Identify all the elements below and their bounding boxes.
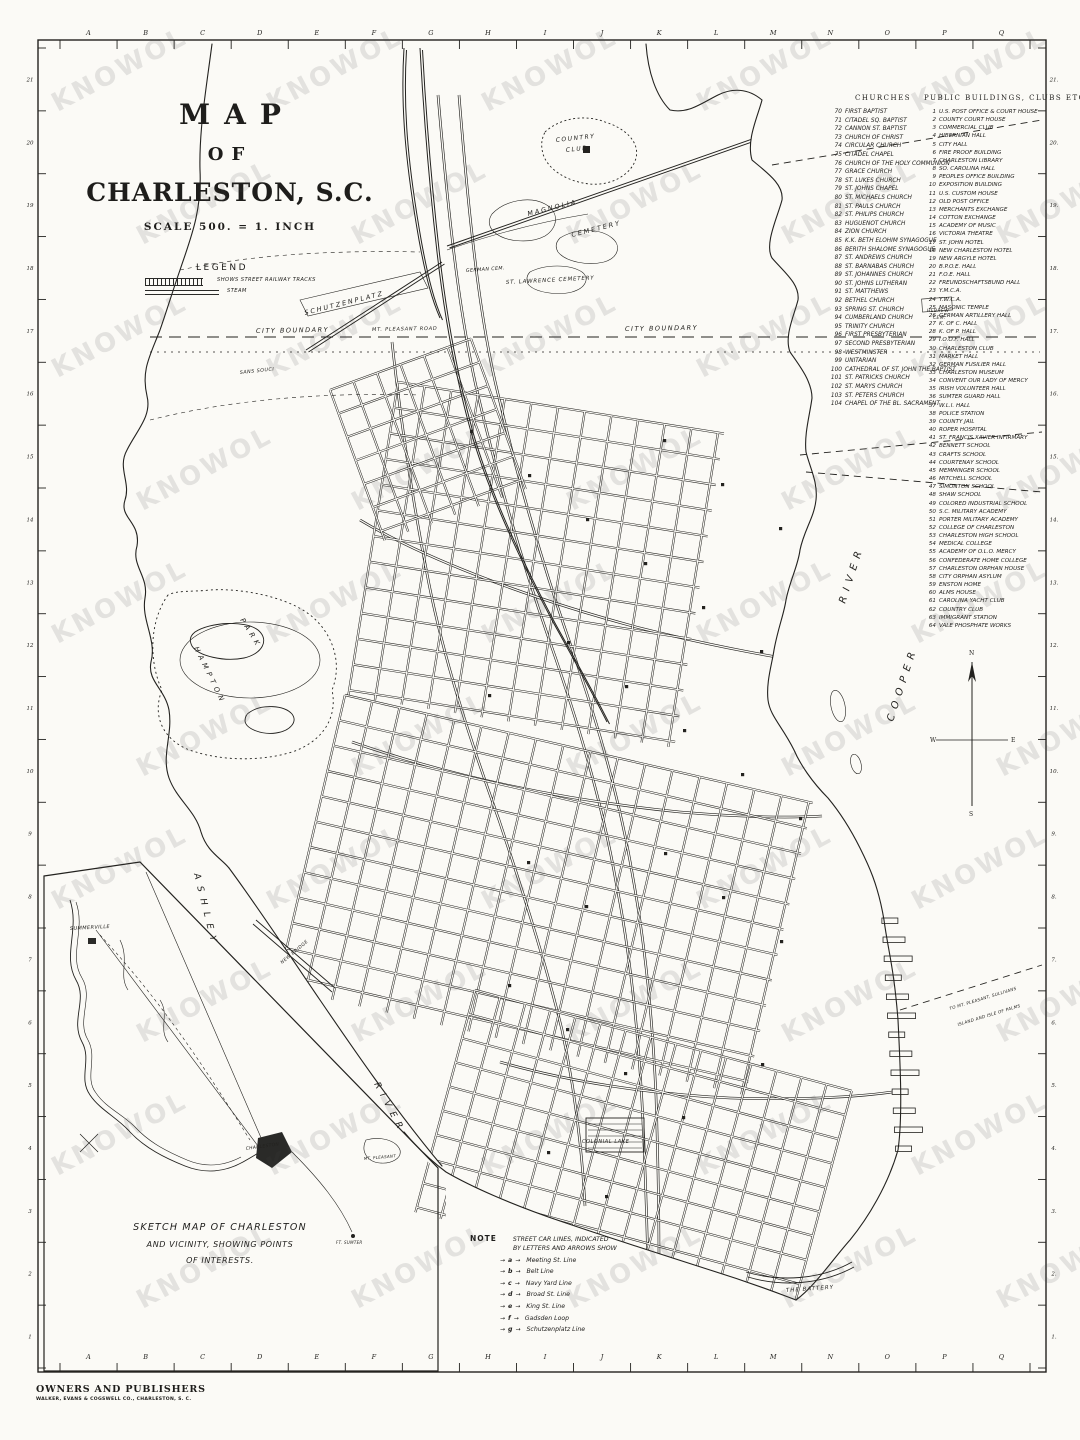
- list-item: 15ACADEMY OF MUSIC: [924, 222, 1048, 230]
- list-item: 44COURTENAY SCHOOL: [924, 459, 1048, 467]
- arrow-icon: →: [500, 1291, 505, 1298]
- list-item: 45MEMMINGER SCHOOL: [924, 467, 1048, 475]
- list-item: 56CONFEDERATE HOME COLLEGE: [924, 557, 1048, 565]
- grid-number: 5: [28, 1083, 32, 1089]
- list-item: 64VALE PHOSPHATE WORKS: [924, 622, 1048, 630]
- list-item: 88ST. BARNABAS CHURCH: [830, 263, 936, 272]
- grid-number: 3.: [1051, 1209, 1056, 1215]
- list-item: 76CHURCH OF THE HOLY COMMUNION: [830, 160, 936, 169]
- list-item: 34CONVENT OUR LADY OF MERCY: [924, 377, 1048, 385]
- list-item: 18NEW CHARLESTON HOTEL: [924, 247, 1048, 255]
- list-item: 11U.S. CUSTOM HOUSE: [924, 190, 1048, 198]
- inset-caption-line-2: AND VICINITY, SHOWING POINTS: [88, 1240, 352, 1249]
- list-item: 9PEOPLES OFFICE BUILDING: [924, 173, 1048, 181]
- list-item: 26GERMAN ARTILLERY HALL: [924, 312, 1048, 320]
- railroad-west: [403, 48, 440, 318]
- compass-w-label: W: [930, 737, 937, 744]
- arrow-icon: →: [515, 1257, 520, 1264]
- inset-summerville-mark: [88, 938, 96, 944]
- list-item: 89ST. JOHANNES CHURCH: [830, 271, 936, 280]
- note-intro-1: STREET CAR LINES, INDICATED: [513, 1236, 609, 1243]
- arrow-icon: →: [500, 1257, 505, 1264]
- label-magnolia-cemetery-1: MAGNOLIA: [527, 198, 578, 218]
- list-item: 30CHARLESTON CLUB: [924, 345, 1048, 353]
- list-item: 43CRAFTS SCHOOL: [924, 451, 1048, 459]
- list-item: 22FREUNDSCHAFTSBUND HALL: [924, 279, 1048, 287]
- note-heading: NOTE: [470, 1234, 497, 1243]
- list-item: 2COUNTY COURT HOUSE: [924, 116, 1048, 124]
- grid-number: 10.: [1050, 769, 1059, 775]
- grid-number: 12.: [1050, 643, 1059, 649]
- arrow-icon: →: [514, 1315, 519, 1322]
- public-buildings-list: PUBLIC BUILDINGS, CLUBS ETC. 1U.S. POST …: [924, 94, 1048, 630]
- street-car-line-item: →d→Broad St. Line: [500, 1291, 617, 1298]
- grid-letter: B: [142, 1353, 148, 1361]
- building-block: [488, 694, 491, 697]
- list-item: 85K.K. BETH ELOHIM SYNAGOGUE: [830, 237, 936, 246]
- list-item: 4HIBERNIAN HALL: [924, 132, 1048, 140]
- grid-letter: I: [543, 29, 547, 37]
- building-block: [761, 1063, 764, 1066]
- public-buildings-header: PUBLIC BUILDINGS, CLUBS ETC.: [924, 94, 1048, 102]
- street-car-line-item: →g→Schutzenplatz Line: [500, 1326, 617, 1333]
- grid-letter: J: [599, 29, 604, 37]
- list-item: 51PORTER MILITARY ACADEMY: [924, 516, 1048, 524]
- grid-letter: H: [484, 29, 491, 37]
- map-title-line-3: CHARLESTON, S.C.: [85, 178, 375, 207]
- hampton-park-outline: [153, 590, 337, 759]
- list-item: 38POLICE STATION: [924, 410, 1048, 418]
- building-block: [799, 817, 802, 820]
- list-item: 95TRINITY CHURCH: [830, 323, 936, 332]
- list-item: 71CITADEL SQ. BAPTIST: [830, 117, 936, 126]
- grid-letter: H: [484, 1353, 491, 1361]
- grid-letter: L: [713, 29, 718, 37]
- inset-compass-cross: [80, 1134, 98, 1152]
- list-item: 57CHARLESTON ORPHAN HOUSE: [924, 565, 1048, 573]
- list-item: 93SPRING ST. CHURCH: [830, 306, 936, 315]
- grid-letter: K: [656, 29, 663, 37]
- label-german-cem: GERMAN CEM.: [466, 265, 505, 274]
- arrow-icon: →: [515, 1291, 520, 1298]
- building-block: [566, 1028, 569, 1031]
- building-block: [644, 562, 647, 565]
- grid-number: 6: [28, 1020, 32, 1026]
- grid-letter: F: [371, 29, 377, 37]
- building-block: [760, 650, 763, 653]
- street-car-line-item: →c→Navy Yard Line: [500, 1280, 617, 1287]
- road-to-cemetery: [447, 214, 588, 250]
- building-block: [663, 439, 666, 442]
- grid-letter: G: [428, 1353, 433, 1361]
- list-item: 96FIRST PRESBYTERIAN: [830, 331, 936, 340]
- list-item: 58CITY ORPHAN ASYLUM: [924, 573, 1048, 581]
- legend-heading: LEGEND: [196, 263, 248, 273]
- list-item: 81ST. PAULS CHURCH: [830, 203, 936, 212]
- list-item: 41ST. FRANCIS XAVIER INFIRMARY: [924, 434, 1048, 442]
- grid-letter: C: [200, 29, 205, 37]
- building-block: [528, 474, 531, 477]
- list-item: 13MERCHANTS EXCHANGE: [924, 206, 1048, 214]
- inset-caption: SKETCH MAP OF CHARLESTON AND VICINITY, S…: [88, 1222, 352, 1265]
- grid-number: 13.: [1050, 580, 1059, 586]
- list-item: 61CAROLINA YACHT CLUB: [924, 597, 1048, 605]
- arrow-icon: →: [515, 1303, 520, 1310]
- list-item: 28K. OF P. HALL: [924, 328, 1048, 336]
- list-item: 91ST. MATTHEWS: [830, 288, 936, 297]
- list-item: 70FIRST BAPTIST: [830, 108, 936, 117]
- grid-number: 10: [27, 769, 34, 775]
- list-item: 33CHARLESTON MUSEUM: [924, 369, 1048, 377]
- list-item: 40ROPER HOSPITAL: [924, 426, 1048, 434]
- grid-letter: F: [371, 1353, 377, 1361]
- inset-caption-line-1: SKETCH MAP OF CHARLESTON: [88, 1222, 352, 1233]
- building-block: [585, 905, 588, 908]
- map-page: AABBCCDDEEFFGGHHIIJJKKLLMMNNOOPPQQ2121.2…: [0, 0, 1080, 1440]
- list-item: 77GRACE CHURCH: [830, 168, 936, 177]
- list-item: 23Y.M.C.A.: [924, 287, 1048, 295]
- list-item: 50S.C. MILITARY ACADEMY: [924, 508, 1048, 516]
- list-item: 98WESTMINSTER: [830, 349, 936, 358]
- grid-number: 21.: [1049, 77, 1059, 83]
- label-mt-pleasant-inset: MT. PLEASANT: [364, 1153, 397, 1161]
- grid-number: 7: [28, 957, 32, 963]
- publisher-line-2: WALKER, EVANS & COGSWELL CO., CHARLESTON…: [36, 1397, 206, 1402]
- list-item: 21F.O.E. HALL: [924, 271, 1048, 279]
- publisher-line-1: OWNERS AND PUBLISHERS: [36, 1384, 206, 1395]
- list-item: 87ST. ANDREWS CHURCH: [830, 254, 936, 263]
- list-item: 7CHARLESTON LIBRARY: [924, 157, 1048, 165]
- grid-letter: B: [142, 29, 148, 37]
- building-block: [508, 984, 511, 987]
- list-item: 100CATHEDRAL OF ST. JOHN THE BAPTIST: [830, 366, 936, 375]
- grid-letter: L: [713, 1353, 718, 1361]
- grid-number: 2: [27, 1272, 32, 1278]
- inset-charleston-blob: [256, 1132, 292, 1168]
- grid-letter: E: [313, 29, 319, 37]
- railroad-northeast-2: [450, 132, 781, 248]
- magnolia-cemetery-outline-2: [556, 231, 617, 264]
- list-item: 36SUMTER GUARD HALL: [924, 393, 1048, 401]
- churches-items: 70FIRST BAPTIST71CITADEL SQ. BAPTIST72CA…: [830, 108, 936, 409]
- grid-letter: M: [769, 29, 777, 37]
- street-car-line-item: →f→Gadsden Loop: [500, 1315, 617, 1322]
- building-block: [547, 1151, 550, 1154]
- list-item: 5CITY HALL: [924, 141, 1048, 149]
- building-block: [702, 606, 705, 609]
- grid-number: 16.: [1050, 392, 1059, 398]
- list-item: 17ST. JOHN HOTEL: [924, 239, 1048, 247]
- list-item: 14COTTON EXCHANGE: [924, 214, 1048, 222]
- grid-number: 18.: [1050, 266, 1059, 272]
- grid-number: 12: [27, 643, 34, 649]
- grid-number: 8.: [1051, 895, 1056, 901]
- list-item: 75CITADEL CHAPEL: [830, 151, 936, 160]
- grid-letter: M: [769, 1353, 777, 1361]
- grid-number: 19.: [1050, 203, 1059, 209]
- grid-number: 9: [28, 832, 32, 838]
- grid-number: 14.: [1050, 517, 1059, 523]
- list-item: 24Y.W.C.A.: [924, 296, 1048, 304]
- list-item: 42BENNETT SCHOOL: [924, 442, 1048, 450]
- list-item: 25MASONIC TEMPLE: [924, 304, 1048, 312]
- street-grid: [330, 339, 526, 541]
- building-block: [586, 518, 589, 521]
- list-item: 3COMMERCIAL CLUB: [924, 124, 1048, 132]
- list-item: 29I.O.O.F. HALL: [924, 336, 1048, 344]
- list-item: 90ST. JOHNS LUTHERAN: [830, 280, 936, 289]
- grid-letter: G: [428, 29, 433, 37]
- grid-number: 19: [27, 203, 34, 209]
- grid-number: 14: [27, 517, 34, 523]
- list-item: 27K. OF C. HALL: [924, 320, 1048, 328]
- label-st-lawrence-cemetery: ST. LAWRENCE CEMETERY: [506, 275, 595, 286]
- grid-number: 17: [27, 329, 34, 335]
- grid-number: 5.: [1051, 1083, 1056, 1089]
- list-item: 31MARKET HALL: [924, 353, 1048, 361]
- list-item: 10EXPOSITION BUILDING: [924, 181, 1048, 189]
- grid-number: 15.: [1050, 455, 1059, 461]
- note-intro-2: BY LETTERS AND ARROWS SHOW: [513, 1245, 617, 1252]
- label-city-boundary-left: CITY BOUNDARY: [256, 326, 329, 335]
- building-block: [567, 641, 570, 644]
- list-item: 60ALMS HOUSE: [924, 589, 1048, 597]
- list-item: 59ENSTON HOME: [924, 581, 1048, 589]
- building-block: [470, 430, 473, 433]
- grid-number: 18: [27, 266, 34, 272]
- list-item: 63IMMIGRANT STATION: [924, 614, 1048, 622]
- arrow-icon: →: [515, 1280, 520, 1287]
- compass-e-label: E: [1011, 737, 1015, 744]
- arrow-icon: →: [515, 1326, 520, 1333]
- list-item: 86BERITH SHALOME SYNAGOGUE: [830, 246, 936, 255]
- legend-item-railway: SHOWS STREET RAILWAY TRACKS: [217, 277, 316, 283]
- inset-harbor-channel: [292, 1152, 352, 1232]
- label-colonial-lake: COLONIAL LAKE: [582, 1139, 630, 1145]
- grid-letter: P: [941, 29, 947, 37]
- grid-number: 20: [26, 140, 34, 146]
- grid-number: 4: [27, 1146, 32, 1152]
- compass-s-label: S: [969, 811, 973, 818]
- list-item: 35IRISH VOLUNTEER HALL: [924, 385, 1048, 393]
- grid-number: 2.: [1050, 1272, 1056, 1278]
- building-block: [721, 483, 724, 486]
- grid-letter: A: [85, 1353, 91, 1361]
- grid-letter: Q: [999, 1353, 1005, 1361]
- grid-letter: O: [885, 1353, 891, 1361]
- arrow-icon: →: [500, 1303, 505, 1310]
- label-sans-souci: SANS SOUCI: [240, 366, 275, 376]
- grid-letter: N: [826, 1353, 833, 1361]
- list-item: 55ACADEMY OF O.L.O. MERCY: [924, 548, 1048, 556]
- label-country-club-1: COUNTRY: [555, 133, 595, 144]
- label-magnolia-cemetery-2: CEMETERY: [571, 219, 622, 239]
- street-car-line-item: →a→Meeting St. Line: [500, 1257, 617, 1264]
- building-block: [741, 773, 744, 776]
- building-block: [624, 1072, 627, 1075]
- list-item: 20B.P.O.E. HALL: [924, 263, 1048, 271]
- grid-number: 3: [28, 1209, 32, 1215]
- building-blocks-group: [470, 430, 802, 1198]
- list-item: 52COLLEGE OF CHARLESTON: [924, 524, 1048, 532]
- list-item: 37W.L.I. HALL: [924, 402, 1048, 410]
- grid-number: 16: [27, 392, 34, 398]
- street-car-lines: →a→Meeting St. Line→b→Belt Line→c→Navy Y…: [470, 1257, 617, 1334]
- label-schutzenplatz: SCHUTZENPLATZ: [304, 289, 385, 317]
- list-item: 83HUGUENOT CHURCH: [830, 220, 936, 229]
- grid-letter: D: [256, 29, 263, 37]
- grid-number: 11: [27, 706, 34, 712]
- list-item: 1U.S. POST OFFICE & COURT HOUSE: [924, 108, 1048, 116]
- list-item: 94CUMBERLAND CHURCH: [830, 314, 936, 323]
- map-scale: SCALE 500. = 1. INCH: [85, 221, 375, 233]
- list-item: 19NEW ARGYLE HOTEL: [924, 255, 1048, 263]
- street-car-line-item: →b→Belt Line: [500, 1268, 617, 1275]
- grid-number: 21: [26, 77, 34, 83]
- grid-number: 8: [28, 895, 32, 901]
- list-item: 84ZION CHURCH: [830, 228, 936, 237]
- building-block: [779, 527, 782, 530]
- inset-caption-line-3: OF INTERESTS.: [88, 1256, 352, 1265]
- building-block: [683, 729, 686, 732]
- title-block: MAP OF CHARLESTON, S.C. SCALE 500. = 1. …: [85, 98, 375, 233]
- list-item: 48SHAW SCHOOL: [924, 491, 1048, 499]
- churches-header: CHURCHES: [830, 94, 936, 102]
- grid-number: 11.: [1050, 706, 1059, 712]
- street-car-line-item: →e→King St. Line: [500, 1303, 617, 1310]
- list-item: 103ST. PETERS CHURCH: [830, 392, 936, 401]
- grid-letter: D: [256, 1353, 263, 1361]
- churches-list: CHURCHES 70FIRST BAPTIST71CITADEL SQ. BA…: [830, 94, 936, 409]
- grid-number: 9.: [1051, 832, 1056, 838]
- grid-letter: A: [85, 29, 91, 37]
- hampton-park-pond-2: [245, 707, 294, 734]
- grid-letter: Q: [999, 29, 1005, 37]
- grid-letter: I: [543, 1353, 547, 1361]
- list-item: 99UNITARIAN: [830, 357, 936, 366]
- list-item: 16VICTORIA THEATRE: [924, 230, 1048, 238]
- building-block: [625, 685, 628, 688]
- list-item: 79ST. JOHNS CHAPEL: [830, 185, 936, 194]
- list-item: 102ST. MARYS CHURCH: [830, 383, 936, 392]
- list-item: 92BETHEL CHURCH: [830, 297, 936, 306]
- list-item: 62COUNTRY CLUB: [924, 606, 1048, 614]
- list-item: 47SIMONTON SCHOOL: [924, 483, 1048, 491]
- grid-number: 13: [27, 580, 34, 586]
- list-item: 12OLD POST OFFICE: [924, 198, 1048, 206]
- list-item: 78ST. LUKES CHURCH: [830, 177, 936, 186]
- grid-number: 7.: [1051, 957, 1056, 963]
- steam-railroad-symbol: [145, 290, 219, 295]
- grid-number: 4.: [1050, 1146, 1056, 1152]
- list-item: 80ST. MICHAELS CHURCH: [830, 194, 936, 203]
- arrow-icon: →: [515, 1268, 520, 1275]
- list-item: 39COUNTY JAIL: [924, 418, 1048, 426]
- grid-letter: N: [826, 29, 833, 37]
- arrow-icon: →: [500, 1280, 505, 1287]
- public-buildings-items: 1U.S. POST OFFICE & COURT HOUSE2COUNTY C…: [924, 108, 1048, 630]
- building-block: [605, 1195, 608, 1198]
- inset-tributary-1: [120, 940, 128, 990]
- grid-number: 15: [27, 455, 34, 461]
- label-city-boundary-right: CITY BOUNDARY: [625, 324, 698, 333]
- map-title-line-2: OF: [85, 144, 375, 165]
- list-item: 74CIRCULAR CHURCH: [830, 142, 936, 151]
- list-item: 6FIRE PROOF BUILDING: [924, 149, 1048, 157]
- map-title-line-1: MAP: [85, 98, 375, 131]
- compass-n-label: N: [969, 650, 974, 657]
- street-car-note: NOTESTREET CAR LINES, INDICATED BY LETTE…: [470, 1226, 617, 1333]
- list-item: 72CANNON ST. BAPTIST: [830, 125, 936, 134]
- list-item: 101ST. PATRICKS CHURCH: [830, 374, 936, 383]
- list-item: 97SECOND PRESBYTERIAN: [830, 340, 936, 349]
- grid-number: 20.: [1049, 140, 1059, 146]
- grid-letter: P: [941, 1353, 947, 1361]
- building-block: [682, 1116, 685, 1119]
- grid-number: 1: [28, 1335, 32, 1341]
- label-summerville: SUMMERVILLE: [70, 924, 111, 932]
- label-mt-pleasant-road: MT. PLEASANT ROAD: [372, 326, 438, 333]
- label-hampton: HAMPTON: [192, 645, 227, 705]
- building-block: [664, 852, 667, 855]
- grid-number: 17.: [1050, 329, 1059, 335]
- grid-letter: O: [885, 29, 891, 37]
- grid-number: 1.: [1051, 1335, 1056, 1341]
- railway-track-symbol: [145, 278, 203, 286]
- arrow-icon: →: [500, 1315, 505, 1322]
- arrow-icon: →: [500, 1268, 505, 1275]
- building-block: [527, 861, 530, 864]
- list-item: 53CHARLESTON HIGH SCHOOL: [924, 532, 1048, 540]
- list-item: 82ST. PHILIPS CHURCH: [830, 211, 936, 220]
- list-item: 32GERMAN FUSILIER HALL: [924, 361, 1048, 369]
- list-item: 104CHAPEL OF THE BL. SACRAMENT: [830, 400, 936, 409]
- grid-letter: E: [313, 1353, 319, 1361]
- building-block: [722, 896, 725, 899]
- publisher-block: OWNERS AND PUBLISHERS WALKER, EVANS & CO…: [36, 1384, 206, 1402]
- legend-item-steam: STEAM: [227, 288, 247, 294]
- list-item: 8SO. CAROLINA HALL: [924, 165, 1048, 173]
- list-item: 46MITCHELL SCHOOL: [924, 475, 1048, 483]
- building-block: [780, 940, 783, 943]
- list-item: 54MEDICAL COLLEGE: [924, 540, 1048, 548]
- grid-letter: C: [200, 1353, 205, 1361]
- grid-number: 6.: [1051, 1020, 1056, 1026]
- list-item: 73CHURCH OF CHRIST: [830, 134, 936, 143]
- arrow-icon: →: [500, 1326, 505, 1333]
- list-item: 49COLORED INDUSTRIAL SCHOOL: [924, 500, 1048, 508]
